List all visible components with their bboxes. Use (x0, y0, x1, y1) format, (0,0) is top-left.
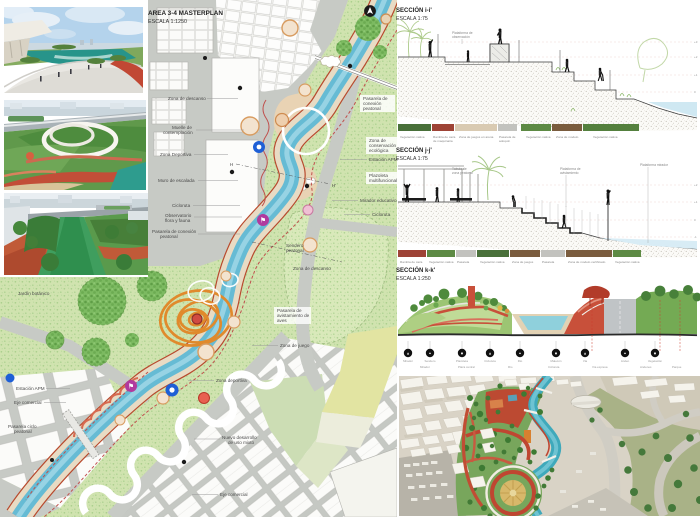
svg-text:Cicloruta: Cicloruta (172, 203, 191, 208)
svg-text:Zona deportiva: Zona deportiva (216, 378, 247, 383)
svg-text:de uso mixto: de uso mixto (228, 440, 254, 445)
svg-text:Plaza central: Plaza central (458, 365, 475, 369)
svg-text:Estación APM: Estación APM (16, 386, 45, 391)
svg-text:Mirador: Mirador (403, 359, 413, 363)
svg-text:Río: Río (518, 359, 523, 363)
svg-text:multifuncional: multifuncional (369, 178, 397, 183)
svg-text:⚑: ⚑ (128, 383, 134, 391)
svg-text:peatonal: peatonal (160, 234, 178, 239)
svg-text:Estación APM: Estación APM (369, 157, 398, 162)
svg-text:Zona de descanso: Zona de descanso (293, 266, 331, 271)
svg-text:Vía expresa: Vía expresa (592, 365, 608, 369)
svg-text:Zona de juegos: Zona de juegos (512, 260, 534, 264)
svg-text:●: ● (519, 351, 521, 355)
svg-text:Cicloruta: Cicloruta (548, 365, 560, 369)
svg-text:■: ■ (461, 351, 463, 355)
svg-text:adoquín: adoquín (499, 139, 510, 143)
svg-text:Vía: Vía (583, 359, 588, 363)
svg-text:+2: +2 (694, 55, 698, 59)
svg-text:Cicloruta: Cicloruta (372, 212, 391, 217)
svg-text:Andenes: Andenes (640, 365, 652, 369)
svg-text:SECCIÓN k-k': SECCIÓN k-k' (396, 266, 436, 274)
svg-text:Plazoleta: Plazoleta (456, 359, 468, 363)
svg-text:+1: +1 (694, 73, 698, 77)
svg-text:peatonal: peatonal (363, 106, 381, 111)
svg-text:Zona de juegos en arena: Zona de juegos en arena (459, 135, 494, 139)
svg-text:H': H' (332, 183, 336, 188)
svg-text:de maquinaria: de maquinaria (433, 139, 453, 143)
svg-text:contemplación: contemplación (163, 130, 193, 135)
svg-text:aves: aves (277, 318, 287, 323)
svg-text:Pasarela: Pasarela (542, 260, 554, 264)
svg-text:Vegetación nativa: Vegetación nativa (429, 260, 454, 264)
svg-text:Anden: Anden (621, 359, 630, 363)
svg-text:Vegetación nativa: Vegetación nativa (400, 135, 425, 139)
svg-text:■: ■ (654, 351, 656, 355)
svg-text:zona peatonal: zona peatonal (452, 171, 473, 175)
svg-text:-1: -1 (694, 235, 697, 239)
svg-text:▲: ▲ (488, 351, 492, 355)
svg-text:Vegetación nativa: Vegetación nativa (526, 135, 551, 139)
svg-text:●: ● (624, 351, 626, 355)
svg-text:Eje comercial: Eje comercial (220, 492, 248, 497)
svg-text:Pasarela: Pasarela (457, 260, 469, 264)
svg-text:Muro de escalada: Muro de escalada (158, 178, 195, 183)
svg-text:Zona de modelo: Zona de modelo (556, 135, 579, 139)
svg-text:Vegetación nativa: Vegetación nativa (593, 135, 618, 139)
svg-text:avistamiento: avistamiento (560, 171, 579, 175)
svg-text:Parque: Parque (672, 365, 682, 369)
svg-text:Zona Deportiva: Zona Deportiva (160, 152, 192, 157)
svg-text:+1: +1 (694, 200, 698, 204)
svg-text:AREA 3-4 MASTERPLAN: AREA 3-4 MASTERPLAN (148, 10, 223, 17)
svg-text:Plataforma mirador: Plataforma mirador (640, 163, 669, 167)
svg-text:Vegetación nativa: Vegetación nativa (615, 260, 640, 264)
svg-text:ESCALA 1:1250: ESCALA 1:1250 (148, 19, 187, 25)
svg-text:Malecón: Malecón (551, 359, 562, 363)
svg-text:SECCIÓN j-j': SECCIÓN j-j' (396, 146, 432, 154)
svg-text:Eje comercial: Eje comercial (14, 400, 42, 405)
svg-text:Río: Río (508, 365, 513, 369)
svg-text:peatonal: peatonal (14, 429, 32, 434)
svg-text:ecológica: ecológica (369, 148, 389, 153)
svg-text:ESCALA 1:250: ESCALA 1:250 (396, 276, 431, 282)
svg-text:+2: +2 (694, 183, 698, 187)
svg-text:ESCALA 1:75: ESCALA 1:75 (396, 16, 428, 22)
svg-text:●: ● (429, 351, 431, 355)
svg-text:Mirador educativo: Mirador educativo (360, 198, 397, 203)
svg-text:▲: ▲ (406, 351, 410, 355)
svg-text:▲: ▲ (583, 351, 587, 355)
svg-text:Zona de juego: Zona de juego (280, 343, 310, 348)
svg-text:ESCALA 1:75: ESCALA 1:75 (396, 156, 428, 162)
svg-text:Rambla de caza: Rambla de caza (400, 260, 423, 264)
svg-text:Zona de descanso: Zona de descanso (168, 96, 206, 101)
svg-text:Cicloruta: Cicloruta (484, 359, 496, 363)
svg-text:Jardín botánico: Jardín botánico (18, 291, 50, 296)
svg-text:Sendero: Sendero (425, 359, 436, 363)
svg-text:Vegetación nativa: Vegetación nativa (480, 260, 505, 264)
svg-text:+3: +3 (694, 40, 698, 44)
svg-text:SECCIÓN i-i': SECCIÓN i-i' (396, 6, 432, 14)
svg-text:H: H (230, 162, 233, 167)
svg-text:observación: observación (452, 35, 470, 39)
svg-text:Vegetación: Vegetación (648, 359, 663, 363)
svg-text:peatonal: peatonal (286, 248, 304, 253)
svg-text:Zona de modelo certificado: Zona de modelo certificado (568, 260, 606, 264)
svg-text:flora y fauna: flora y fauna (165, 218, 191, 223)
svg-text:⚑: ⚑ (260, 217, 266, 225)
svg-text:■: ■ (555, 351, 557, 355)
svg-text:Mirador: Mirador (420, 365, 430, 369)
